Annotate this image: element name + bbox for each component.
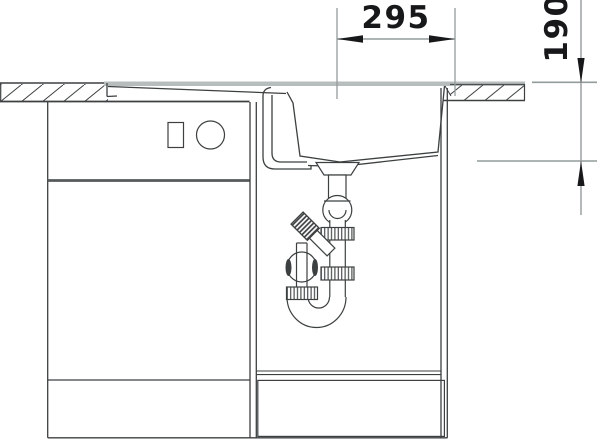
cabinet-right (48, 88, 448, 438)
width-arrow-left (337, 35, 363, 43)
countertop-hatch-left (0, 84, 108, 101)
depth-dim-label: 190 (539, 0, 575, 63)
coupling-nut-lower (321, 267, 354, 280)
riser-nut (287, 287, 318, 300)
technical-drawing: 295 190 (0, 0, 600, 441)
siphon-trap (286, 163, 360, 328)
drain-tailpiece (329, 175, 347, 198)
drainboard-slope (108, 87, 286, 94)
bowl-interior (287, 86, 445, 162)
bowl-left-wall-inner (272, 95, 307, 162)
depth-arrow-top (577, 58, 584, 83)
cabinet-middle-walls (250, 102, 256, 438)
sink-installation-diagram: 295 190 (0, 0, 600, 441)
dimension-depth: 190 (477, 0, 597, 215)
u-bend-outer (287, 297, 346, 327)
coupling-nut-upper (321, 228, 354, 241)
drawer-symbol-square (168, 123, 184, 148)
drain-flange (316, 163, 359, 176)
drainboard-lip-foot (107, 96, 117, 97)
cabinet-left (48, 102, 250, 438)
union-wing-left (286, 259, 292, 276)
union-wing-right (312, 259, 318, 276)
pipe-stub (330, 220, 346, 228)
countertop-hatch-right (450, 85, 525, 101)
width-arrow-right (429, 35, 455, 43)
drawer-symbol-circle (197, 121, 225, 149)
sink (107, 83, 445, 169)
plinth-panel (258, 380, 445, 436)
depth-arrow-bottom (577, 161, 584, 186)
width-dim-label: 295 (361, 0, 430, 36)
